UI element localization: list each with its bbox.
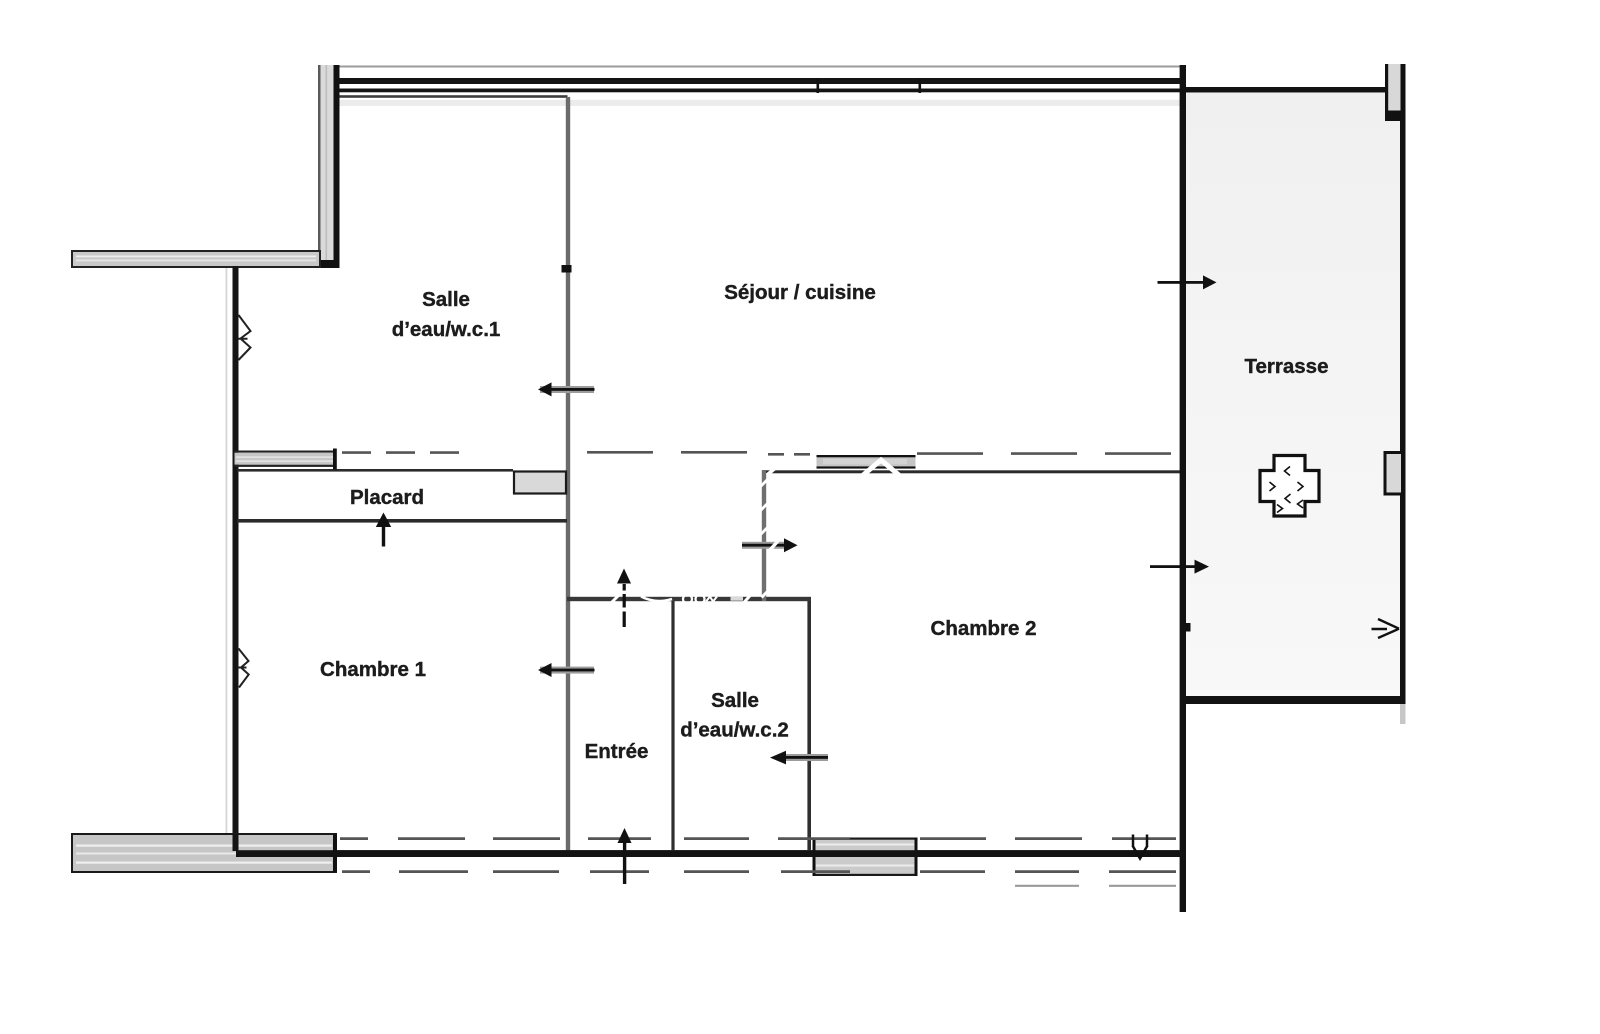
svg-text:Chambre 2: Chambre 2	[931, 617, 1037, 640]
svg-text:Salle: Salle	[711, 689, 759, 712]
svg-text:Entrée: Entrée	[585, 740, 649, 763]
svg-text:Placard: Placard	[350, 486, 424, 509]
svg-text:Chambre 1: Chambre 1	[320, 658, 426, 681]
svg-text:Séjour / cuisine: Séjour / cuisine	[724, 281, 876, 304]
svg-text:Terrasse: Terrasse	[1245, 355, 1329, 378]
svg-text:d’eau/w.c.2: d’eau/w.c.2	[680, 719, 789, 742]
svg-text:d’eau/w.c.1: d’eau/w.c.1	[392, 318, 501, 341]
svg-text:Salle: Salle	[422, 288, 470, 311]
